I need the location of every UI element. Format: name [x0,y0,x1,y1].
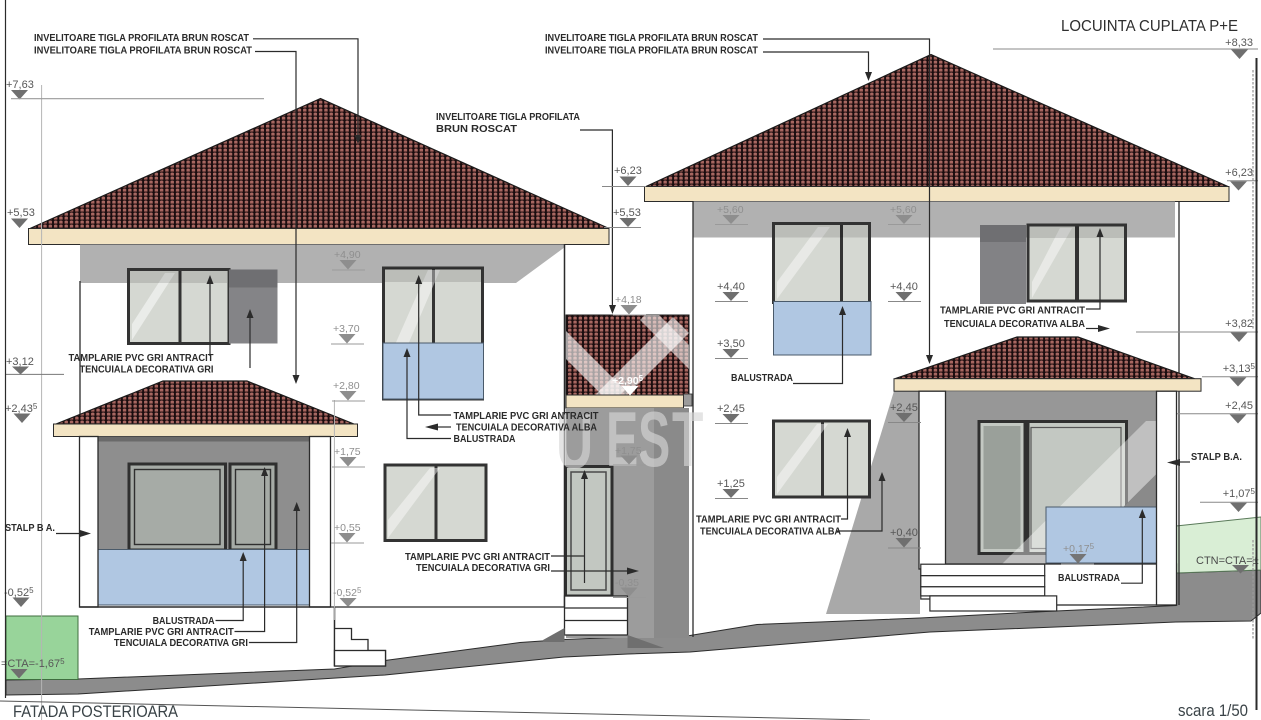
svg-text:INVELITOARE TIGLA PROFILATA: INVELITOARE TIGLA PROFILATA [436,111,580,123]
svg-text:TENCUIALA DECORATIVA ALBA: TENCUIALA DECORATIVA ALBA [456,422,597,434]
svg-text:+8,33: +8,33 [1225,37,1253,49]
svg-text:STALP B A.: STALP B A. [5,522,55,534]
svg-text:+7,63: +7,63 [6,79,34,91]
svg-text:TAMPLARIE PVC GRI ANTRACIT: TAMPLARIE PVC GRI ANTRACIT [940,305,1086,317]
svg-text:BRUN ROSCAT: BRUN ROSCAT [436,123,518,135]
svg-text:TENCUIALA DECORATIVA ALBA: TENCUIALA DECORATIVA ALBA [944,318,1085,330]
svg-text:INVELITOARE TIGLA PROFILATA BR: INVELITOARE TIGLA PROFILATA BRUN ROSCAT [34,45,253,57]
svg-text:+1,25: +1,25 [717,478,745,490]
svg-text:+2,45: +2,45 [890,402,918,414]
svg-text:+3,12: +3,12 [6,356,34,368]
svg-text:TENCUIALA DECORATIVA ALBA: TENCUIALA DECORATIVA ALBA [700,526,841,538]
svg-text:+4,18: +4,18 [615,294,642,306]
svg-text:+0,55: +0,55 [334,522,361,534]
svg-text:+4,90: +4,90 [334,249,361,261]
svg-text:=CTA=-1,675: =CTA=-1,675 [1,657,65,670]
svg-text:+5,60: +5,60 [717,204,744,216]
svg-text:TENCUIALA DECORATIVA GRI: TENCUIALA DECORATIVA GRI [80,364,214,376]
svg-text:+2,45: +2,45 [717,403,745,415]
svg-text:TAMPLARIE PVC GRI ANTRACIT: TAMPLARIE PVC GRI ANTRACIT [454,410,600,422]
svg-text:TENCUIALA DECORATIVA GRI: TENCUIALA DECORATIVA GRI [114,637,248,649]
svg-text:FATADA POSTERIOARA: FATADA POSTERIOARA [13,703,178,720]
svg-text:S: S [638,395,670,483]
svg-text:+1,75: +1,75 [615,445,642,457]
svg-text:+6,23: +6,23 [1225,167,1253,179]
svg-text:STALP B.A.: STALP B.A. [1191,451,1242,463]
svg-text:INVELITOARE TIGLA PROFILATA BR: INVELITOARE TIGLA PROFILATA BRUN ROSCAT [34,32,250,44]
svg-text:+3,82: +3,82 [1225,318,1253,330]
svg-text:+5,53: +5,53 [613,207,641,219]
svg-text:-0,35: -0,35 [615,577,639,589]
svg-text:BALUSTRADA: BALUSTRADA [731,372,793,384]
svg-text:+3,70: +3,70 [333,323,360,335]
svg-text:+4,40: +4,40 [717,281,745,293]
svg-text:BALUSTRADA: BALUSTRADA [1058,572,1120,584]
svg-text:+2,45: +2,45 [1225,400,1253,412]
svg-text:+5,60: +5,60 [890,204,917,216]
svg-text:T: T [672,396,703,483]
svg-text:E: E [606,395,638,483]
svg-text:TAMPLARIE PVC GRI ANTRACIT: TAMPLARIE PVC GRI ANTRACIT [69,352,215,364]
svg-text:BALUSTRADA: BALUSTRADA [454,433,516,445]
svg-text:+6,23: +6,23 [614,165,642,177]
svg-text:TAMPLARIE PVC GRI ANTRACIT: TAMPLARIE PVC GRI ANTRACIT [696,514,842,526]
svg-text:INVELITOARE TIGLA PROFILATA BR: INVELITOARE TIGLA PROFILATA BRUN ROSCAT [545,32,759,44]
svg-text:+3,50: +3,50 [717,338,745,350]
svg-text:+0,40: +0,40 [890,527,918,539]
svg-text:CTN=CTA=±: CTN=CTA=± [1196,555,1259,567]
svg-text:INVELITOARE TIGLA PROFILATA BR: INVELITOARE TIGLA PROFILATA BRUN ROSCAT [545,45,759,57]
svg-text:LOCUINTA CUPLATA P+E: LOCUINTA CUPLATA P+E [1061,18,1238,35]
svg-text:+5,53: +5,53 [7,207,35,219]
svg-text:+1,75: +1,75 [334,446,361,458]
svg-text:scara 1/50: scara 1/50 [1178,702,1248,720]
svg-text:TENCUIALA DECORATIVA GRI: TENCUIALA DECORATIVA GRI [416,562,550,574]
svg-text:+4,40: +4,40 [890,281,918,293]
svg-text:+2,80: +2,80 [333,380,360,392]
